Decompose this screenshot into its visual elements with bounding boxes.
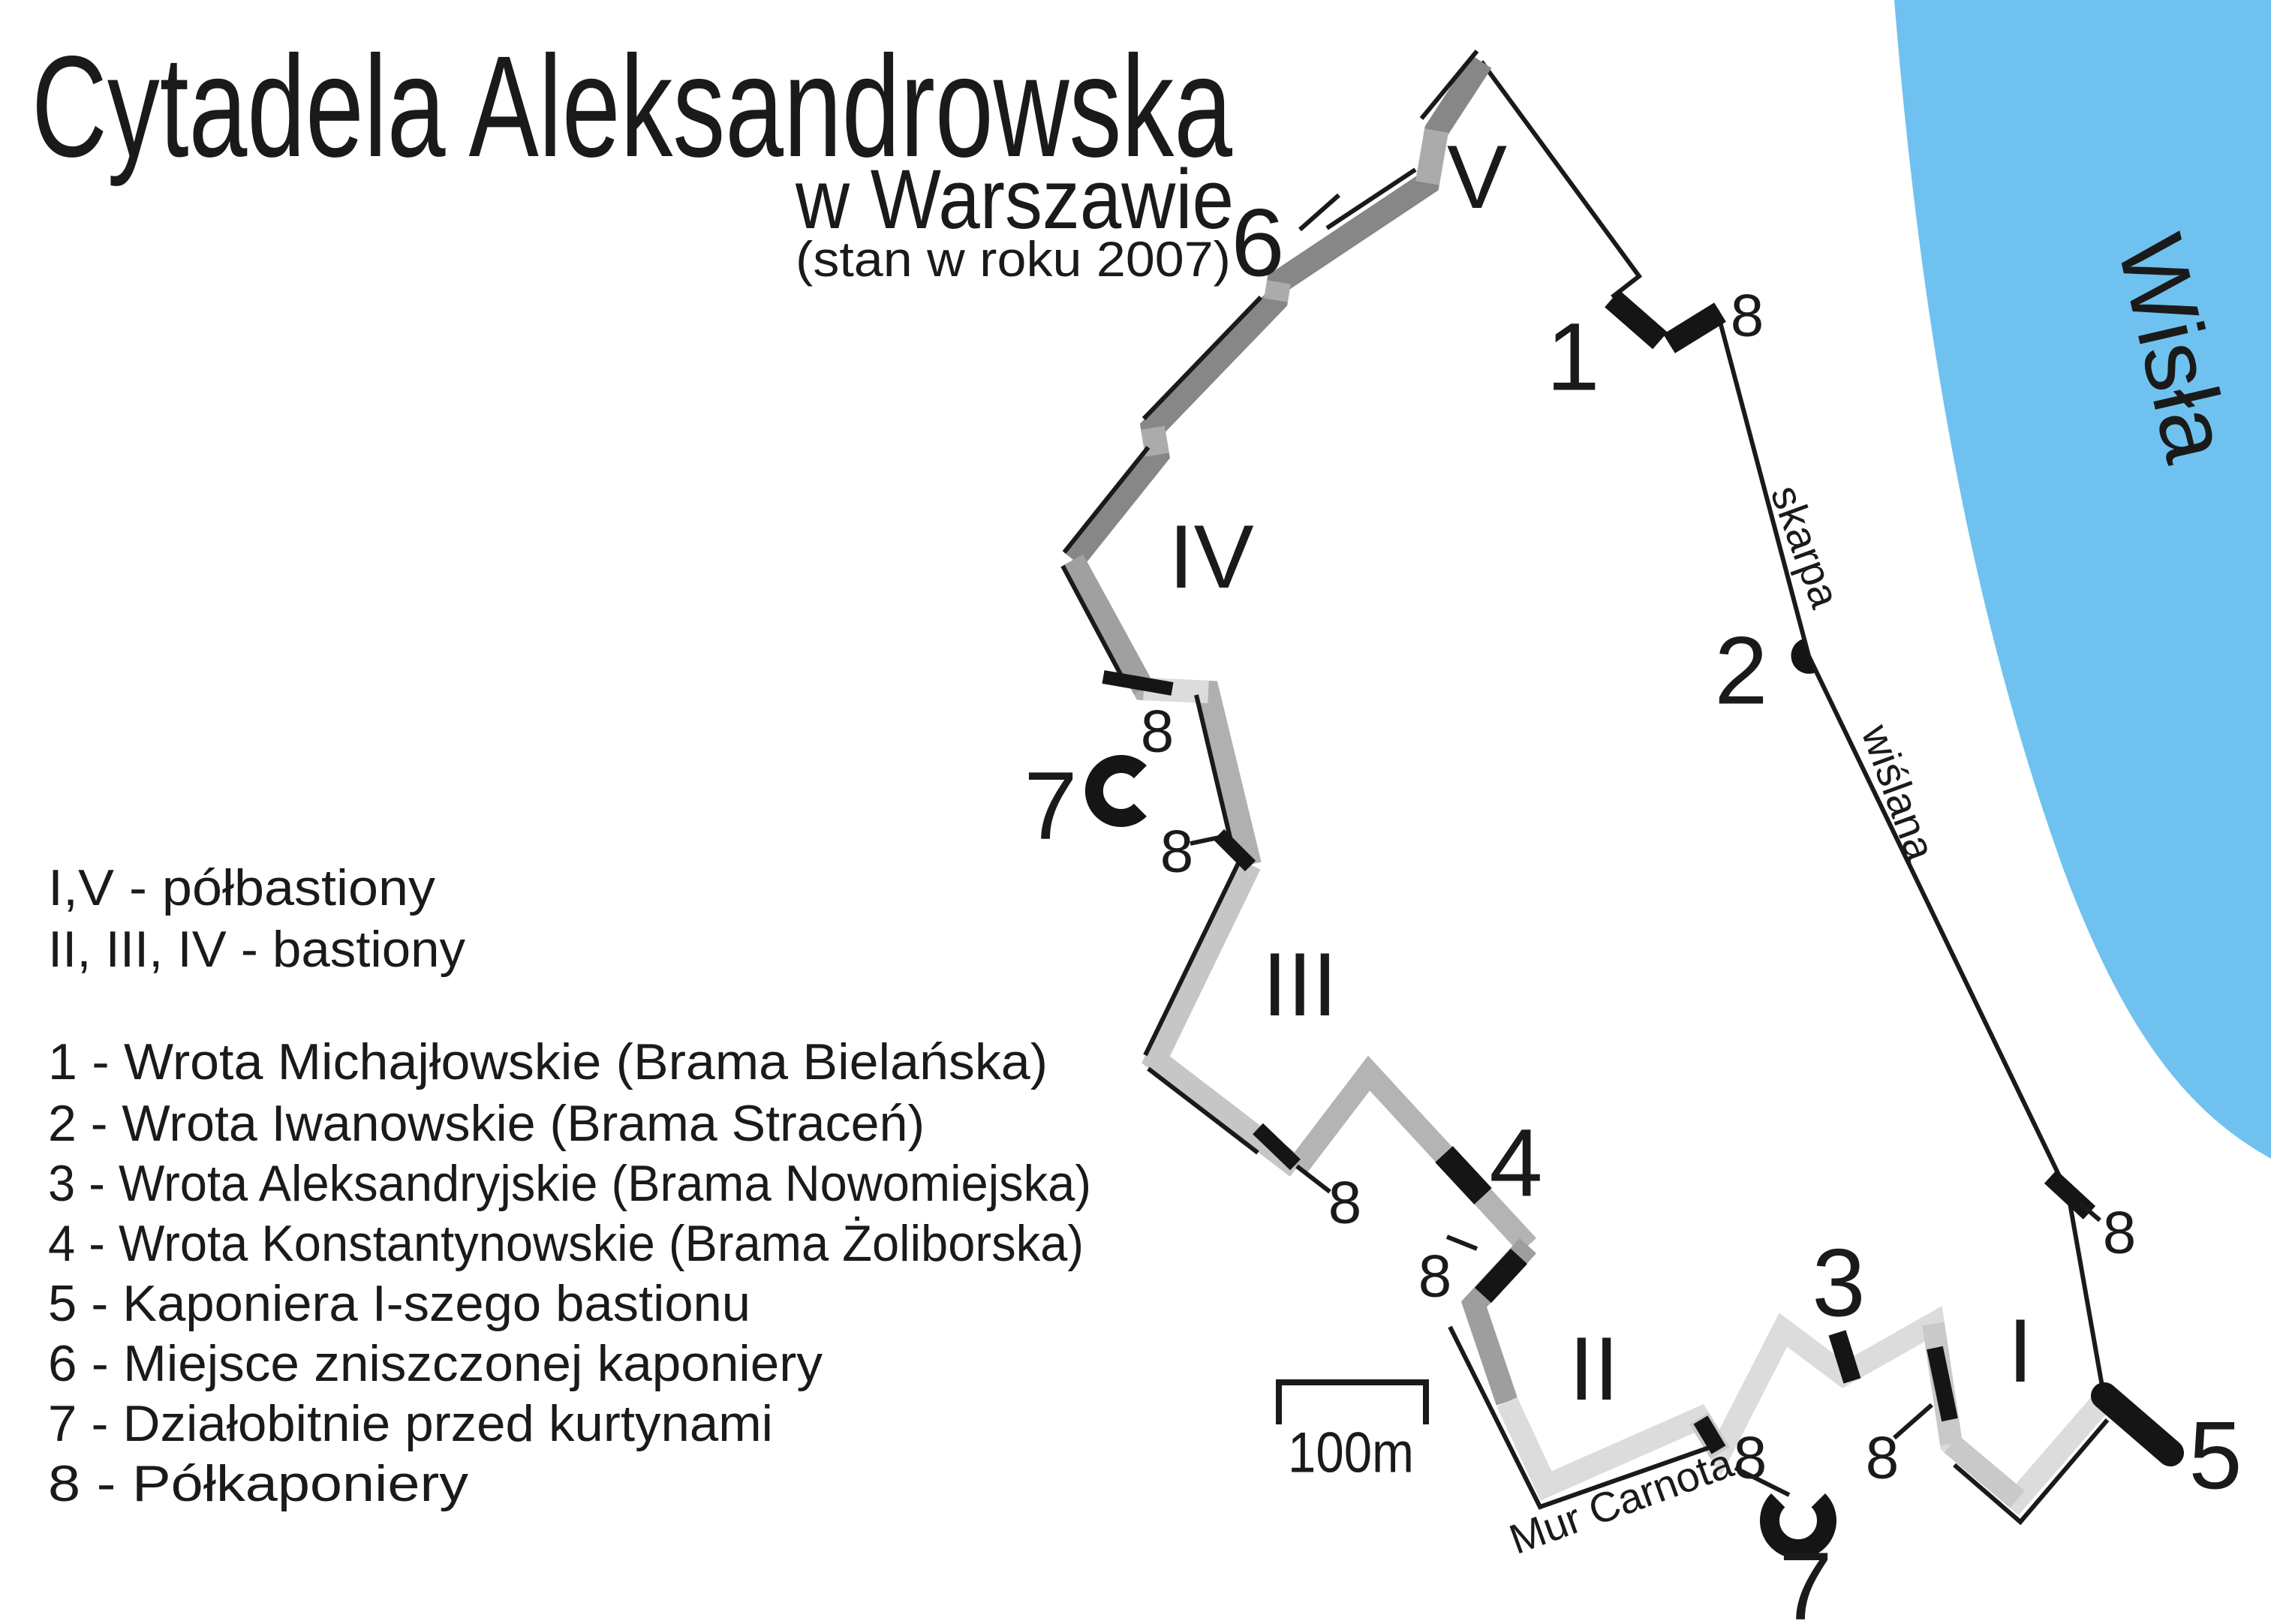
num-8-a-label: 8	[1141, 698, 1175, 765]
num-8-gate1-label: 8	[1731, 282, 1764, 349]
num-6-label: 6	[1231, 190, 1284, 297]
legend-item-8: 8 - Półkaponiery	[48, 1455, 468, 1512]
num-8-b-label: 8	[1160, 818, 1194, 885]
legend-item-1: 1 - Wrota Michajłowskie (Brama Bielańska…	[48, 1033, 1048, 1090]
citadel-map-svg: Wisła skarpa wiślana	[0, 0, 2271, 1624]
bastion-iv-label: IV	[1169, 507, 1253, 607]
legend-item-5: 5 - Kaponiera I-szego bastionu	[48, 1275, 750, 1332]
legend-item-2: 2 - Wrota Iwanowskie (Brama Straceń)	[48, 1095, 925, 1152]
num-2-label: 2	[1714, 618, 1767, 725]
num-8-d-label: 8	[1418, 1243, 1452, 1310]
scale-bar-label: 100m	[1288, 1421, 1414, 1485]
wall-jog-3	[1153, 428, 1157, 455]
num-8-valley-right-label: 8	[1866, 1424, 1900, 1491]
legend-class-halfbastions: I,V - półbastiony	[48, 859, 435, 916]
bastion-ii-label: II	[1569, 1319, 1620, 1419]
legend-item-7: 7 - Działobitnie przed kurtynami	[48, 1395, 773, 1452]
num-7-lower-label: 7	[1779, 1533, 1832, 1624]
bastion-i-label: I	[2008, 1301, 2032, 1401]
num-8-c-label: 8	[1328, 1169, 1362, 1236]
num-4-label: 4	[1489, 1110, 1542, 1217]
legend-class-bastions: II, III, IV - bastiony	[48, 921, 465, 978]
page-note: (stan w roku 2007)	[796, 231, 1231, 287]
num-8-valley-left-label: 8	[1734, 1424, 1767, 1491]
num-8-east-label: 8	[2103, 1199, 2137, 1266]
num-7-upper-label: 7	[1024, 753, 1077, 860]
num-3-label: 3	[1812, 1230, 1865, 1337]
legend-item-4: 4 - Wrota Konstantynowskie (Brama Żolibo…	[48, 1215, 1084, 1272]
bastion-v-label: V	[1447, 127, 1507, 227]
legend-item-6: 6 - Miejsce zniszczonej kaponiery	[48, 1335, 823, 1392]
bastion-iii-label: III	[1262, 934, 1337, 1035]
num-5-label: 5	[2188, 1403, 2242, 1510]
citadel-map-page: Wisła skarpa wiślana	[0, 0, 2271, 1624]
num-1-label: 1	[1546, 304, 1599, 411]
wall-jog-1	[1427, 131, 1436, 183]
legend-item-3: 3 - Wrota Aleksandryjskie (Brama Nowomie…	[48, 1155, 1091, 1212]
